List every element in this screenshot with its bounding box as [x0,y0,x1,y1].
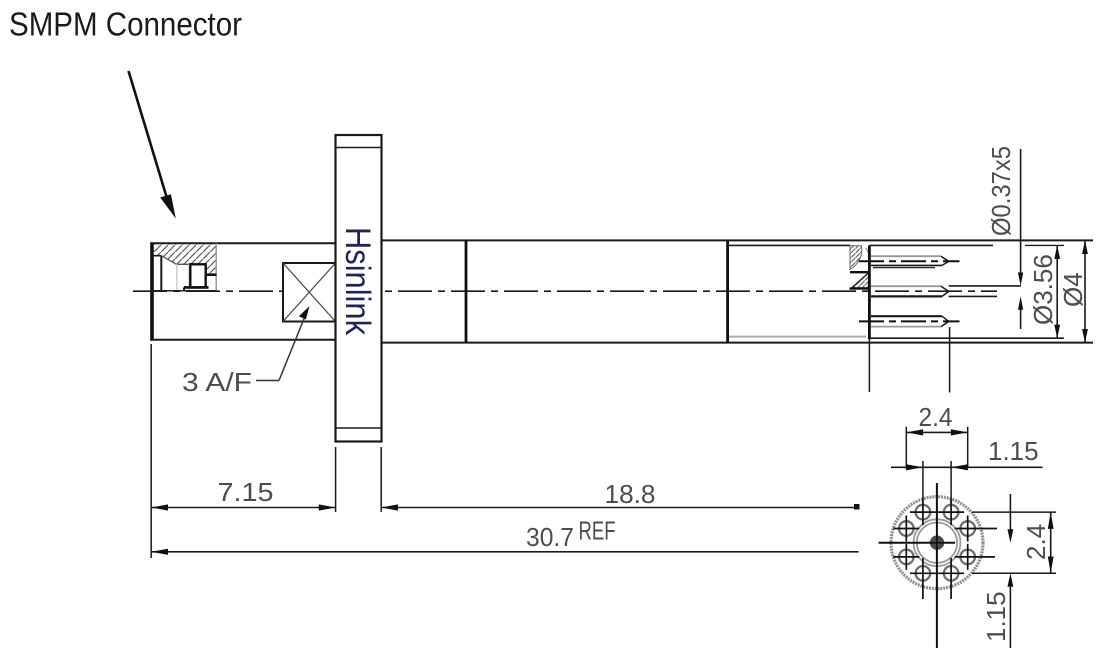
svg-text:1.15: 1.15 [988,436,1039,466]
svg-text:30.7: 30.7 [526,522,574,552]
svg-text:1.15: 1.15 [981,591,1011,642]
svg-text:REF: REF [579,516,616,546]
svg-text:Ø0.37x5: Ø0.37x5 [986,146,1016,236]
svg-text:Hsinlink: Hsinlink [338,227,377,335]
svg-text:Ø4: Ø4 [1058,272,1088,307]
svg-text:2.4: 2.4 [919,402,953,432]
svg-text:2.4: 2.4 [1021,524,1051,560]
svg-text:SMPM Connector: SMPM Connector [9,6,242,43]
svg-text:Ø3.56: Ø3.56 [1028,254,1058,325]
svg-text:18.8: 18.8 [605,479,656,509]
svg-text:3 A/F: 3 A/F [182,367,252,397]
svg-text:7.15: 7.15 [218,477,274,507]
